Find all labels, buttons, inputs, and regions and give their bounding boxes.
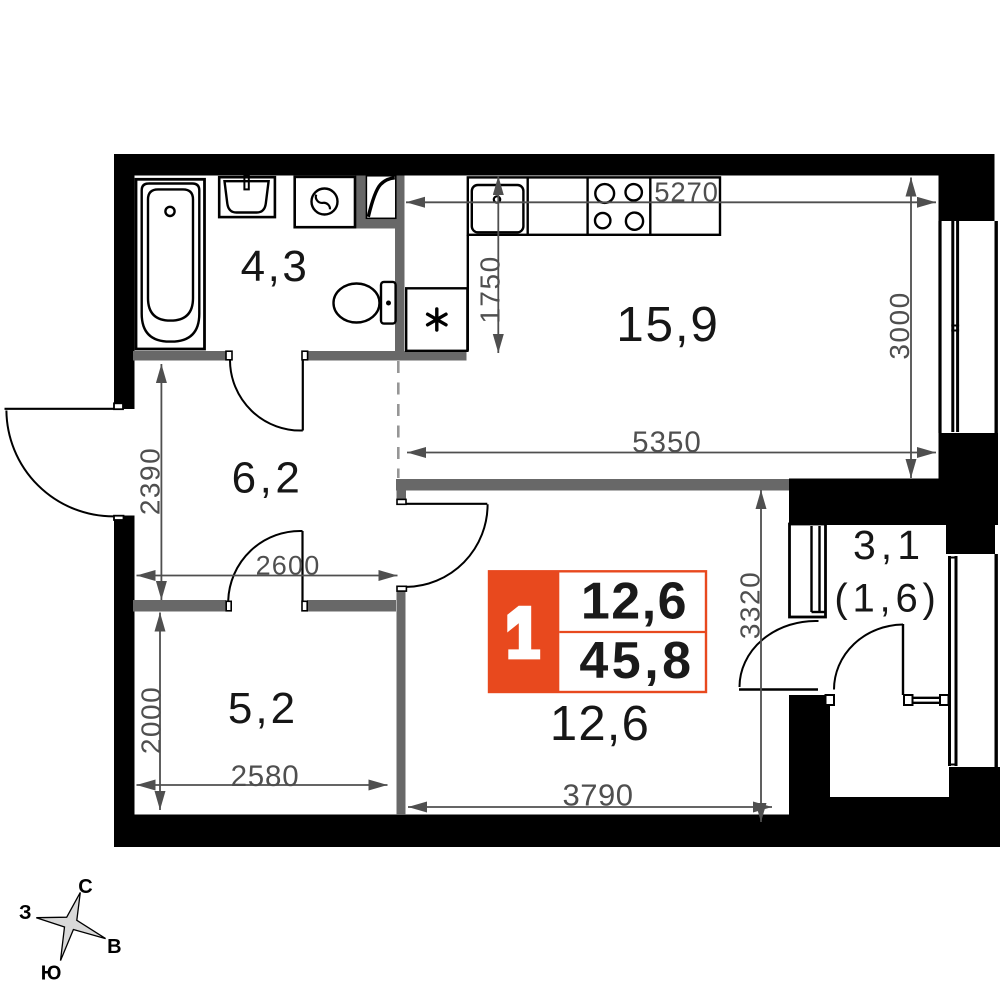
svg-text:3,1: 3,1 bbox=[853, 522, 925, 568]
svg-text:1750: 1750 bbox=[475, 255, 506, 323]
svg-text:15,9: 15,9 bbox=[616, 297, 720, 352]
svg-text:3790: 3790 bbox=[563, 778, 634, 813]
svg-text:С: С bbox=[78, 876, 92, 898]
svg-text:12,6: 12,6 bbox=[581, 573, 688, 631]
svg-text:Ю: Ю bbox=[41, 962, 62, 984]
svg-text:(1,6): (1,6) bbox=[834, 577, 940, 621]
svg-text:45,8: 45,8 bbox=[579, 632, 694, 690]
svg-text:5270: 5270 bbox=[654, 177, 718, 208]
svg-text:5350: 5350 bbox=[632, 426, 702, 459]
svg-text:5,2: 5,2 bbox=[228, 684, 298, 733]
svg-text:2600: 2600 bbox=[256, 551, 321, 581]
svg-text:3000: 3000 bbox=[884, 291, 915, 359]
svg-text:2000: 2000 bbox=[136, 686, 167, 754]
svg-text:6,2: 6,2 bbox=[232, 454, 304, 503]
svg-text:З: З bbox=[19, 902, 32, 924]
svg-text:3320: 3320 bbox=[735, 571, 766, 639]
svg-text:12,6: 12,6 bbox=[550, 697, 650, 751]
svg-text:4,3: 4,3 bbox=[241, 242, 310, 291]
svg-text:2390: 2390 bbox=[135, 447, 166, 515]
svg-text:В: В bbox=[107, 936, 121, 958]
svg-text:2580: 2580 bbox=[231, 760, 300, 793]
